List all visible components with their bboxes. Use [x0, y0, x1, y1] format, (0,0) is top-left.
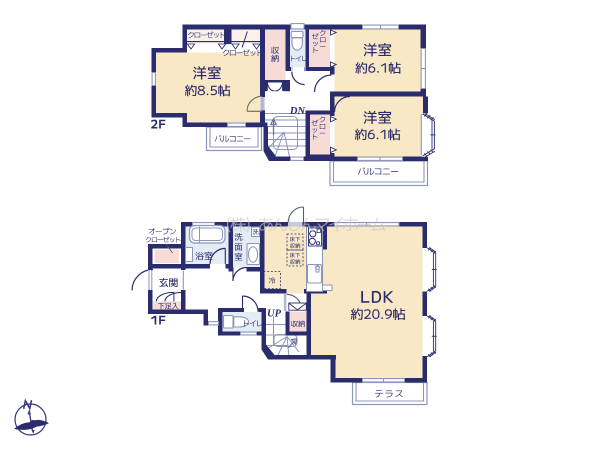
svg-text:UP: UP — [267, 309, 282, 320]
svg-text:DN: DN — [289, 106, 306, 117]
